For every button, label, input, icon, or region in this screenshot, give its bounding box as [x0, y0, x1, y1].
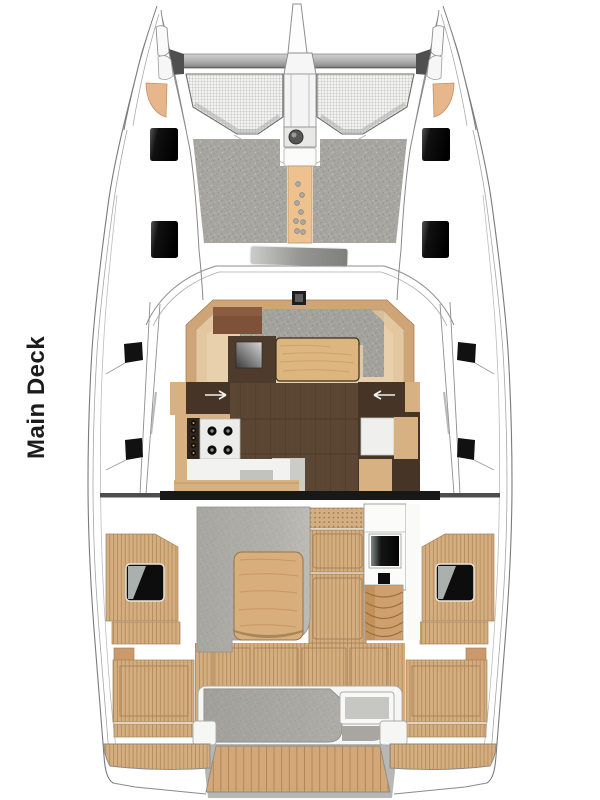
svg-text:Main Deck: Main Deck	[23, 336, 50, 459]
